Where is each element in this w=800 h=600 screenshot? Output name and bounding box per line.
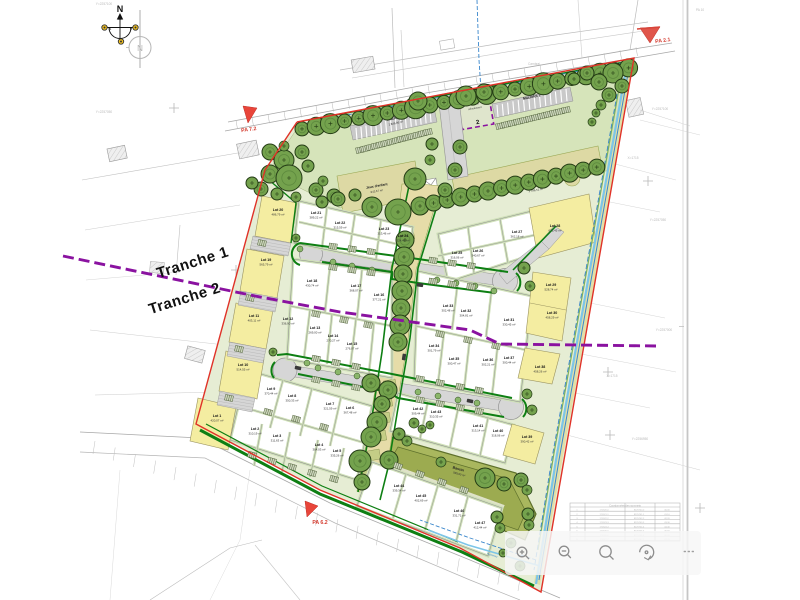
svg-text:Lot 25: Lot 25: [452, 251, 463, 255]
svg-text:Cambrai: Cambrai: [528, 62, 540, 66]
svg-text:300,47 m²: 300,47 m²: [447, 362, 460, 366]
svg-text:Lot 16: Lot 16: [374, 293, 385, 297]
svg-text:43,30: 43,30: [664, 522, 670, 524]
svg-text:Lot 22: Lot 22: [335, 221, 346, 225]
svg-text:Y=2256950: Y=2256950: [632, 437, 649, 441]
svg-text:PA 6.2: PA 6.2: [312, 520, 327, 526]
svg-text:Lot 21: Lot 21: [311, 211, 322, 215]
svg-text:389,22 m²: 389,22 m²: [309, 216, 322, 220]
svg-text:Lot 46: Lot 46: [454, 509, 465, 513]
svg-text:Lot 7: Lot 7: [326, 402, 335, 406]
svg-text:458,29 m²: 458,29 m²: [545, 316, 558, 320]
svg-text:Lot 32: Lot 32: [461, 309, 472, 313]
svg-text:Lot 47: Lot 47: [475, 521, 486, 525]
svg-text:402,69 m²: 402,69 m²: [414, 499, 427, 503]
svg-text:N: N: [117, 4, 124, 14]
svg-text:412,44 m²: 412,44 m²: [473, 526, 486, 530]
svg-text:8225740,0: 8225740,0: [634, 510, 645, 512]
svg-text:458,26 m²: 458,26 m²: [533, 370, 546, 374]
svg-text:8225743,3: 8225743,3: [634, 522, 645, 524]
svg-text:321,59 m²: 321,59 m²: [323, 407, 336, 411]
svg-text:Lot 4: Lot 4: [315, 443, 324, 447]
svg-text:Lot 2: Lot 2: [251, 427, 260, 431]
svg-text:377,21 m²: 377,21 m²: [372, 298, 385, 302]
svg-text:Lot 30: Lot 30: [547, 311, 558, 315]
svg-text:Lot 40: Lot 40: [493, 429, 504, 433]
svg-text:Lot 10: Lot 10: [238, 363, 249, 367]
svg-text:Lot 11: Lot 11: [249, 314, 259, 318]
svg-text:Lot 42: Lot 42: [413, 407, 424, 411]
svg-text:304,81 m²: 304,81 m²: [459, 314, 472, 318]
svg-text:300,44 m²: 300,44 m²: [502, 361, 515, 365]
svg-text:Y=2257100: Y=2257100: [652, 107, 669, 111]
svg-text:Lot 39: Lot 39: [522, 435, 533, 439]
svg-text:171523,3: 171523,3: [599, 522, 609, 524]
svg-text:269,00 m²: 269,00 m²: [308, 331, 321, 335]
svg-text:330,45 m²: 330,45 m²: [502, 323, 515, 327]
svg-text:430,74 m²: 430,74 m²: [305, 284, 318, 288]
svg-text:N: N: [137, 44, 143, 53]
svg-text:336,90 m²: 336,90 m²: [281, 322, 294, 326]
svg-text:270,27 m²: 270,27 m²: [326, 339, 339, 343]
svg-text:Lot 14: Lot 14: [328, 334, 339, 338]
svg-text:Y=2257000: Y=2257000: [656, 328, 673, 332]
svg-text:313,46 m²: 313,46 m²: [377, 232, 390, 236]
svg-text:Lot 18: Lot 18: [307, 279, 318, 283]
svg-text:331,71 m²: 331,71 m²: [452, 514, 465, 518]
svg-text:Lot 5: Lot 5: [333, 449, 342, 453]
svg-text:403,11 m²: 403,11 m²: [248, 319, 261, 323]
svg-text:Lot 8: Lot 8: [288, 394, 297, 398]
svg-text:276,07 m²: 276,07 m²: [345, 347, 358, 351]
svg-text:310,35 m²: 310,35 m²: [429, 415, 442, 419]
svg-text:301,79 m²: 301,79 m²: [427, 349, 440, 353]
svg-text:X=1715: X=1715: [627, 156, 638, 160]
svg-text:420,07 m²: 420,07 m²: [210, 419, 223, 423]
svg-text:8225741,1: 8225741,1: [634, 514, 645, 516]
svg-text:318,06 m²: 318,06 m²: [491, 434, 504, 438]
svg-text:Coordonnées des sommets: Coordonnées des sommets: [609, 504, 641, 508]
svg-text:Lot 37: Lot 37: [504, 356, 515, 360]
svg-text:304,03 m²: 304,03 m²: [312, 448, 325, 452]
svg-text:370,44 m²: 370,44 m²: [264, 392, 277, 396]
svg-text:41,10: 41,10: [664, 514, 670, 516]
svg-text:Lot 35: Lot 35: [449, 357, 460, 361]
svg-text:368,07 m²: 368,07 m²: [349, 289, 362, 293]
svg-text:Lot 36: Lot 36: [483, 358, 494, 362]
svg-text:675,45 m²: 675,45 m²: [548, 229, 561, 233]
svg-text:Lot 34: Lot 34: [429, 344, 440, 348]
svg-text:Lot 43: Lot 43: [431, 410, 442, 414]
svg-text:316,06 m²: 316,06 m²: [450, 256, 463, 260]
svg-text:171521,1: 171521,1: [599, 514, 609, 516]
svg-text:Lot 1: Lot 1: [213, 414, 222, 418]
svg-text:PA 10: PA 10: [696, 8, 704, 12]
svg-text:42,20: 42,20: [664, 518, 670, 520]
svg-text:Lot 15: Lot 15: [347, 342, 358, 346]
svg-text:302,48 m²: 302,48 m²: [441, 309, 454, 313]
svg-text:Lot 44: Lot 44: [394, 484, 405, 488]
svg-text:Lot 45: Lot 45: [416, 494, 427, 498]
svg-text:Lot 26: Lot 26: [473, 249, 484, 253]
svg-text:335,26 m²: 335,26 m²: [330, 454, 343, 458]
svg-text:350,33 m²: 350,33 m²: [285, 399, 298, 403]
svg-text:X=1715: X=1715: [606, 374, 617, 378]
svg-text:Lot 3: Lot 3: [273, 434, 282, 438]
svg-text:486,79 m²: 486,79 m²: [271, 213, 284, 217]
svg-text:40,00: 40,00: [664, 510, 670, 512]
svg-text:44,40: 44,40: [664, 526, 670, 528]
svg-text:315,59 m²: 315,59 m²: [333, 226, 346, 230]
svg-text:310,19 m²: 310,19 m²: [248, 432, 261, 436]
svg-text:Lot 9: Lot 9: [267, 387, 276, 391]
svg-text:313,14 m²: 313,14 m²: [471, 429, 484, 433]
svg-text:Lot 31: Lot 31: [504, 318, 515, 322]
svg-text:309,44 m²: 309,44 m²: [411, 412, 424, 416]
svg-text:302,21 m²: 302,21 m²: [481, 363, 494, 367]
svg-text:Lot 17: Lot 17: [351, 284, 362, 288]
svg-text:Lot 12: Lot 12: [283, 317, 294, 321]
svg-text:Lot 27: Lot 27: [512, 230, 523, 234]
svg-text:Lot 41: Lot 41: [473, 424, 484, 428]
svg-text:Lot 20: Lot 20: [273, 208, 284, 212]
svg-text:367,48 m²: 367,48 m²: [343, 411, 356, 415]
svg-text:Lot 28: Lot 28: [550, 224, 561, 228]
svg-text:362,18 m²: 362,18 m²: [510, 235, 523, 239]
svg-text:Y=2257100: Y=2257100: [96, 2, 113, 6]
svg-text:171522,2: 171522,2: [599, 518, 609, 520]
svg-text:Y=2257050: Y=2257050: [650, 218, 667, 222]
svg-text:340,67 m²: 340,67 m²: [471, 254, 484, 258]
svg-text:311,63 m²: 311,63 m²: [271, 439, 284, 443]
svg-text:528,74 m²: 528,74 m²: [544, 288, 557, 292]
svg-text:171524,4: 171524,4: [599, 526, 609, 528]
svg-text:Lot 23: Lot 23: [379, 227, 390, 231]
svg-text:8225742,2: 8225742,2: [634, 518, 645, 520]
svg-text:Lot 6: Lot 6: [346, 406, 355, 410]
svg-text:339,34 m²: 339,34 m²: [392, 489, 405, 493]
svg-text:565,79 m²: 565,79 m²: [259, 263, 272, 267]
svg-text:514,55 m²: 514,55 m²: [236, 368, 249, 372]
svg-text:Lot 33: Lot 33: [443, 304, 454, 308]
svg-text:Lot 13: Lot 13: [310, 326, 321, 330]
svg-text:Lot 38: Lot 38: [535, 365, 546, 369]
svg-text:A: A: [119, 16, 122, 21]
svg-text:390,42 m²: 390,42 m²: [520, 440, 533, 444]
svg-text:8225744,4: 8225744,4: [634, 526, 645, 528]
svg-text:Lot 29: Lot 29: [546, 283, 557, 287]
svg-text:171520,0: 171520,0: [599, 510, 609, 512]
svg-text:Lot 19: Lot 19: [261, 258, 272, 262]
svg-text:Y=2257050: Y=2257050: [96, 110, 113, 114]
svg-text:324,43 m²: 324,43 m²: [396, 239, 409, 243]
svg-text:Lot 24: Lot 24: [398, 234, 409, 238]
